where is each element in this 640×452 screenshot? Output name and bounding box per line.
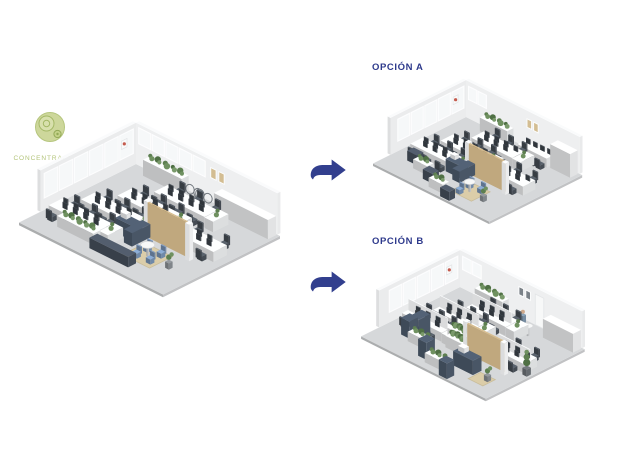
option-a-label: OPCIÓN A: [372, 62, 423, 73]
arrow-right-icon: [308, 155, 348, 185]
option-b-render: [356, 245, 592, 407]
arrow-right-icon: [308, 267, 348, 297]
office-layout-visualization: CONCENTRACIÓN OPCIÓN A OPCIÓN B: [0, 0, 640, 452]
current-floorplan-render: [8, 116, 292, 314]
option-a-render: [369, 75, 589, 227]
